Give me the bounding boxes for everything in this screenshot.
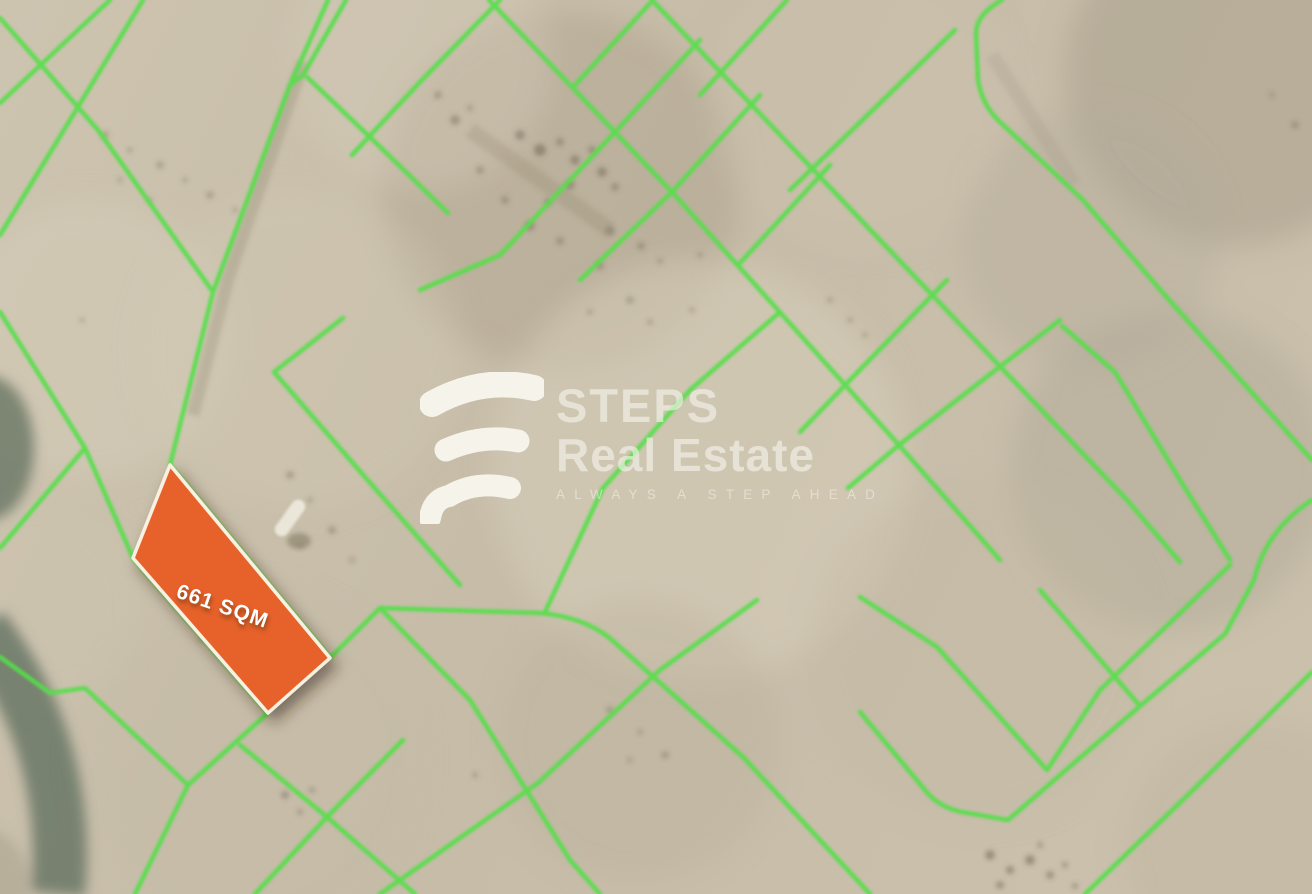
terrain-washes [0,0,1312,894]
satellite-map-canvas: 661 SQM STEPS Real Estate ALWAYS A STEP … [0,0,1312,894]
map-layers [0,0,1312,894]
